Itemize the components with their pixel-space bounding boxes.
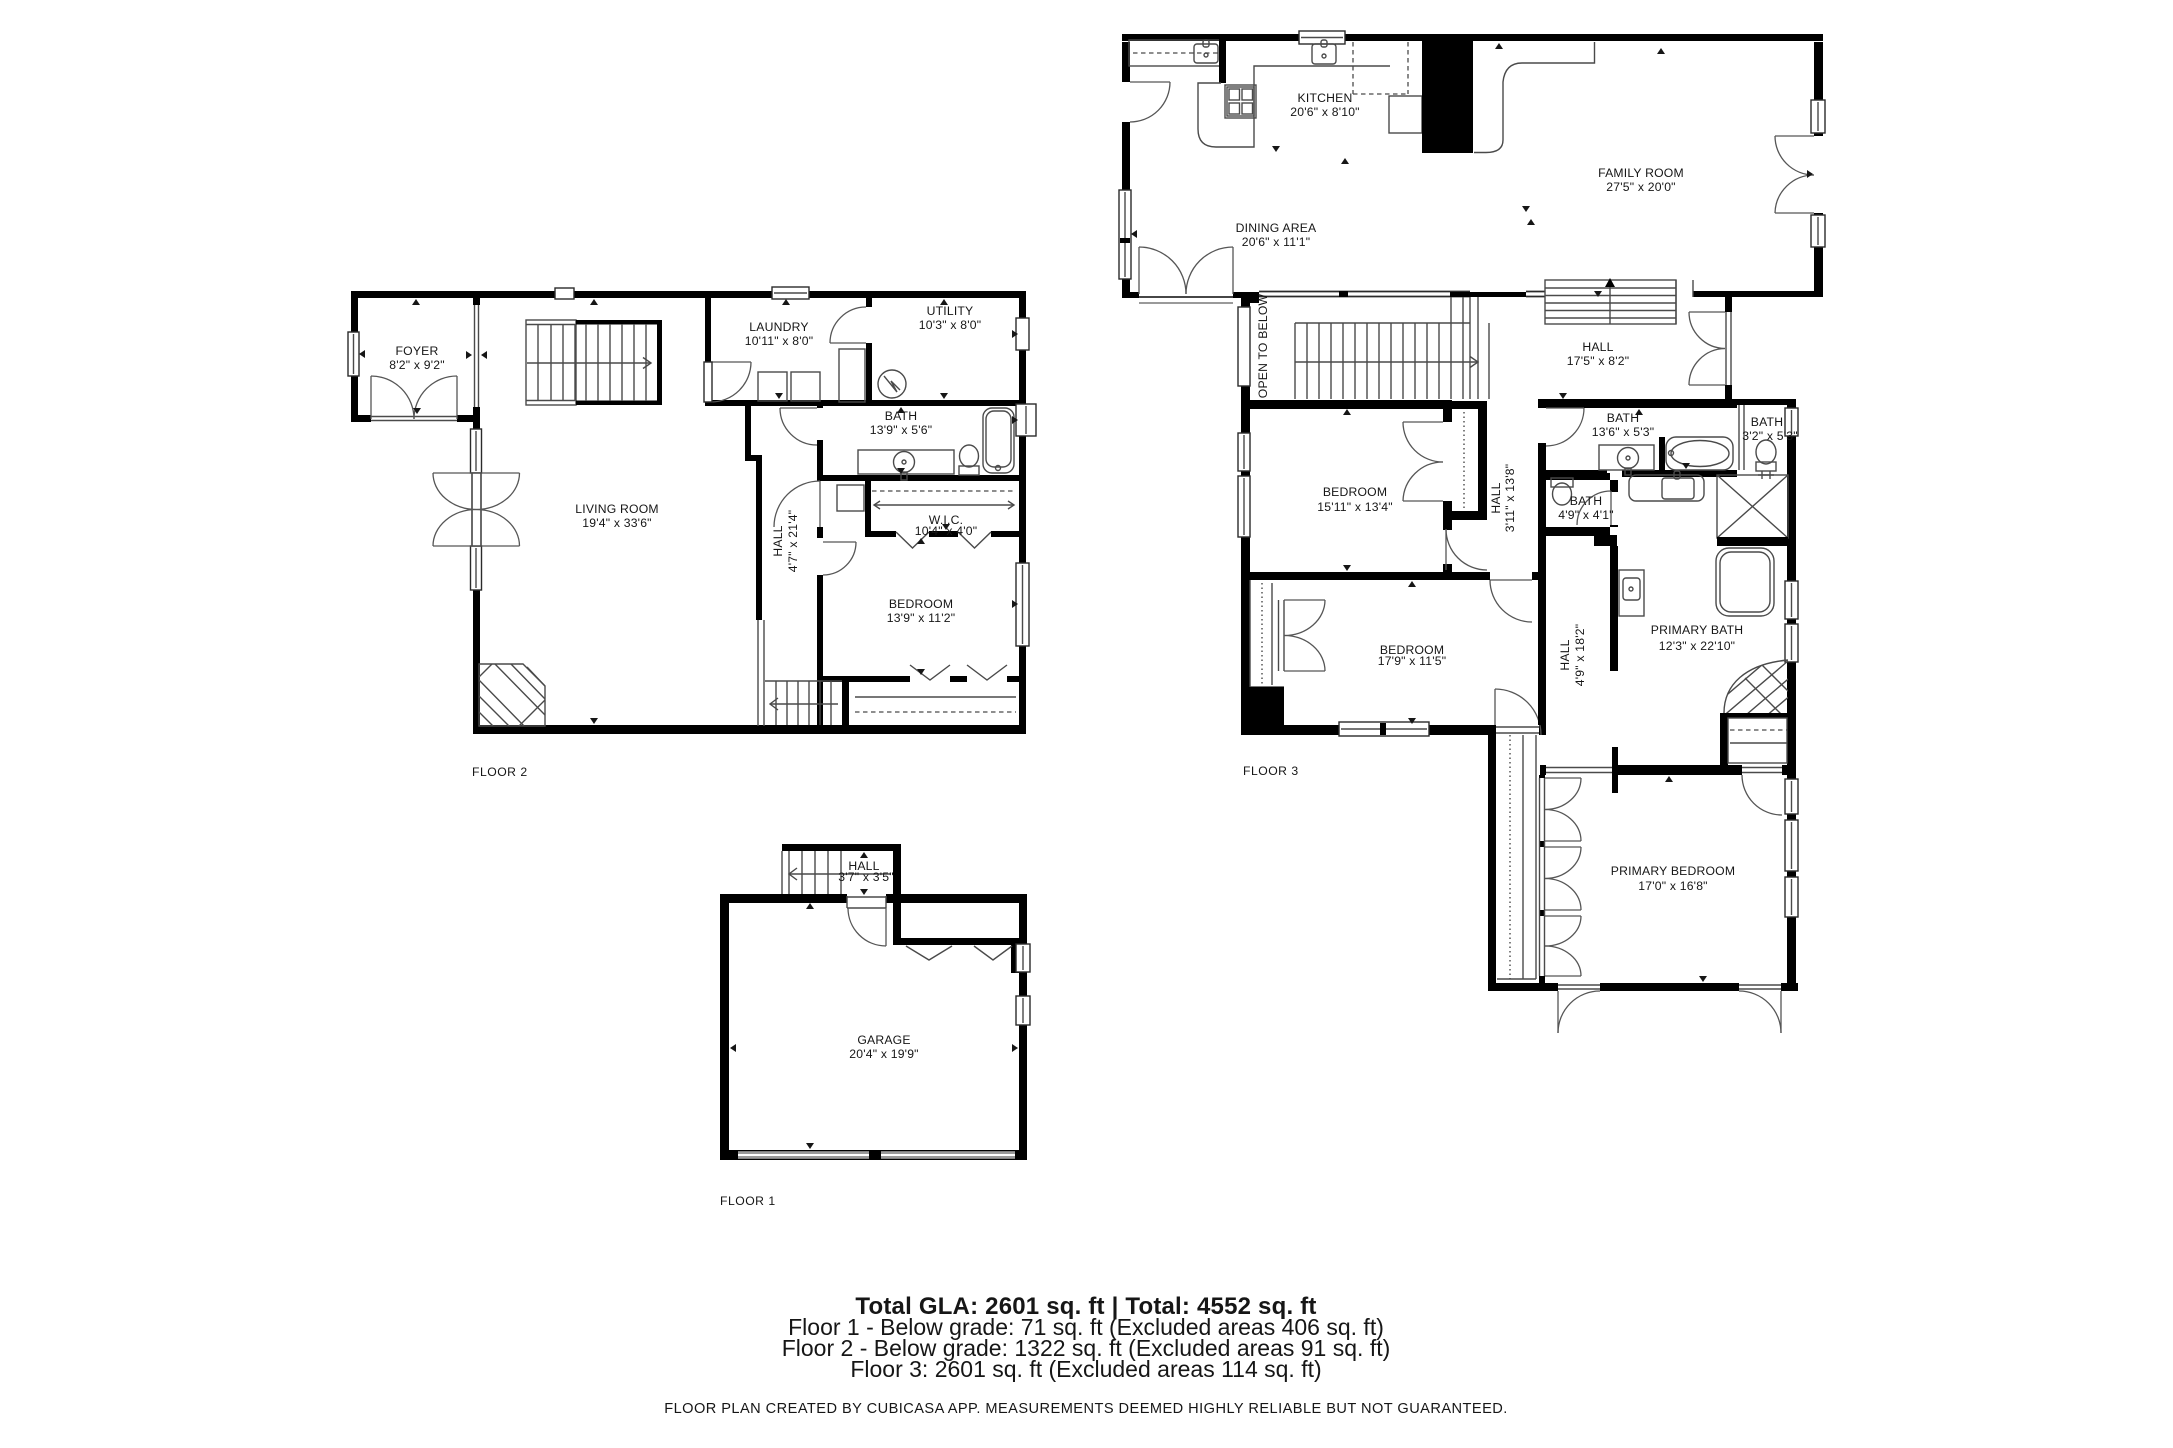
svg-text:4'9" x 18'2": 4'9" x 18'2" xyxy=(1573,624,1587,686)
svg-text:3'11" x 13'8": 3'11" x 13'8" xyxy=(1503,464,1517,533)
svg-text:20'6" x 11'1": 20'6" x 11'1" xyxy=(1242,235,1311,249)
svg-text:HALL: HALL xyxy=(1582,340,1613,354)
svg-text:DINING AREA: DINING AREA xyxy=(1236,221,1317,235)
svg-text:FOYER: FOYER xyxy=(396,344,439,358)
svg-text:Floor 3: 2601 sq. ft (Excluded: Floor 3: 2601 sq. ft (Excluded areas 114… xyxy=(850,1356,1321,1382)
svg-text:3'7" x 3'5": 3'7" x 3'5" xyxy=(838,870,894,884)
svg-text:17'5" x 8'2": 17'5" x 8'2" xyxy=(1567,354,1629,368)
svg-text:4'9" x 4'1": 4'9" x 4'1" xyxy=(1558,508,1614,522)
svg-text:BEDROOM: BEDROOM xyxy=(889,597,953,611)
svg-text:FLOOR PLAN CREATED BY CUBICASA: FLOOR PLAN CREATED BY CUBICASA APP. MEAS… xyxy=(664,1401,1508,1417)
svg-text:19'4" x 33'6": 19'4" x 33'6" xyxy=(582,516,651,530)
svg-text:GARAGE: GARAGE xyxy=(857,1033,910,1047)
svg-text:4'7" x 21'4": 4'7" x 21'4" xyxy=(786,510,800,572)
svg-text:BATH: BATH xyxy=(1607,411,1639,425)
svg-text:12'3" x 22'10": 12'3" x 22'10" xyxy=(1659,639,1735,653)
svg-text:HALL: HALL xyxy=(1489,482,1503,513)
svg-text:17'0" x 16'8": 17'0" x 16'8" xyxy=(1638,879,1707,893)
svg-text:20'6" x 8'10": 20'6" x 8'10" xyxy=(1290,105,1359,119)
svg-text:20'4" x 19'9": 20'4" x 19'9" xyxy=(849,1047,918,1061)
svg-text:27'5" x 20'0": 27'5" x 20'0" xyxy=(1606,180,1675,194)
svg-text:BATH: BATH xyxy=(1751,415,1783,429)
svg-text:FLOOR 3: FLOOR 3 xyxy=(1243,764,1299,778)
svg-text:FAMILY ROOM: FAMILY ROOM xyxy=(1598,166,1684,180)
svg-text:PRIMARY BATH: PRIMARY BATH xyxy=(1651,623,1743,637)
svg-text:13'9" x 5'6": 13'9" x 5'6" xyxy=(870,423,932,437)
svg-text:KITCHEN: KITCHEN xyxy=(1298,91,1353,105)
svg-text:FLOOR 2: FLOOR 2 xyxy=(472,765,528,779)
svg-text:13'6" x 5'3": 13'6" x 5'3" xyxy=(1592,425,1654,439)
svg-text:10'11" x 8'0": 10'11" x 8'0" xyxy=(745,334,814,348)
svg-text:17'9" x 11'5": 17'9" x 11'5" xyxy=(1378,654,1447,668)
svg-text:FLOOR 1: FLOOR 1 xyxy=(720,1194,776,1208)
svg-text:LAUNDRY: LAUNDRY xyxy=(749,320,808,334)
svg-text:HALL: HALL xyxy=(771,525,785,556)
svg-text:UTILITY: UTILITY xyxy=(927,304,974,318)
svg-text:LIVING ROOM: LIVING ROOM xyxy=(575,502,658,516)
svg-text:10'3" x 8'0": 10'3" x 8'0" xyxy=(919,318,981,332)
svg-text:15'11" x 13'4": 15'11" x 13'4" xyxy=(1317,500,1393,514)
svg-text:OPEN TO BELOW: OPEN TO BELOW xyxy=(1256,294,1270,399)
svg-text:8'2" x 9'2": 8'2" x 9'2" xyxy=(389,358,445,372)
svg-text:PRIMARY BEDROOM: PRIMARY BEDROOM xyxy=(1611,864,1735,878)
svg-text:13'9" x 11'2": 13'9" x 11'2" xyxy=(887,611,956,625)
svg-text:3'2" x 5'3": 3'2" x 5'3" xyxy=(1742,429,1798,443)
svg-text:BEDROOM: BEDROOM xyxy=(1323,485,1387,499)
svg-text:BATH: BATH xyxy=(1570,494,1602,508)
svg-text:HALL: HALL xyxy=(1558,639,1572,670)
